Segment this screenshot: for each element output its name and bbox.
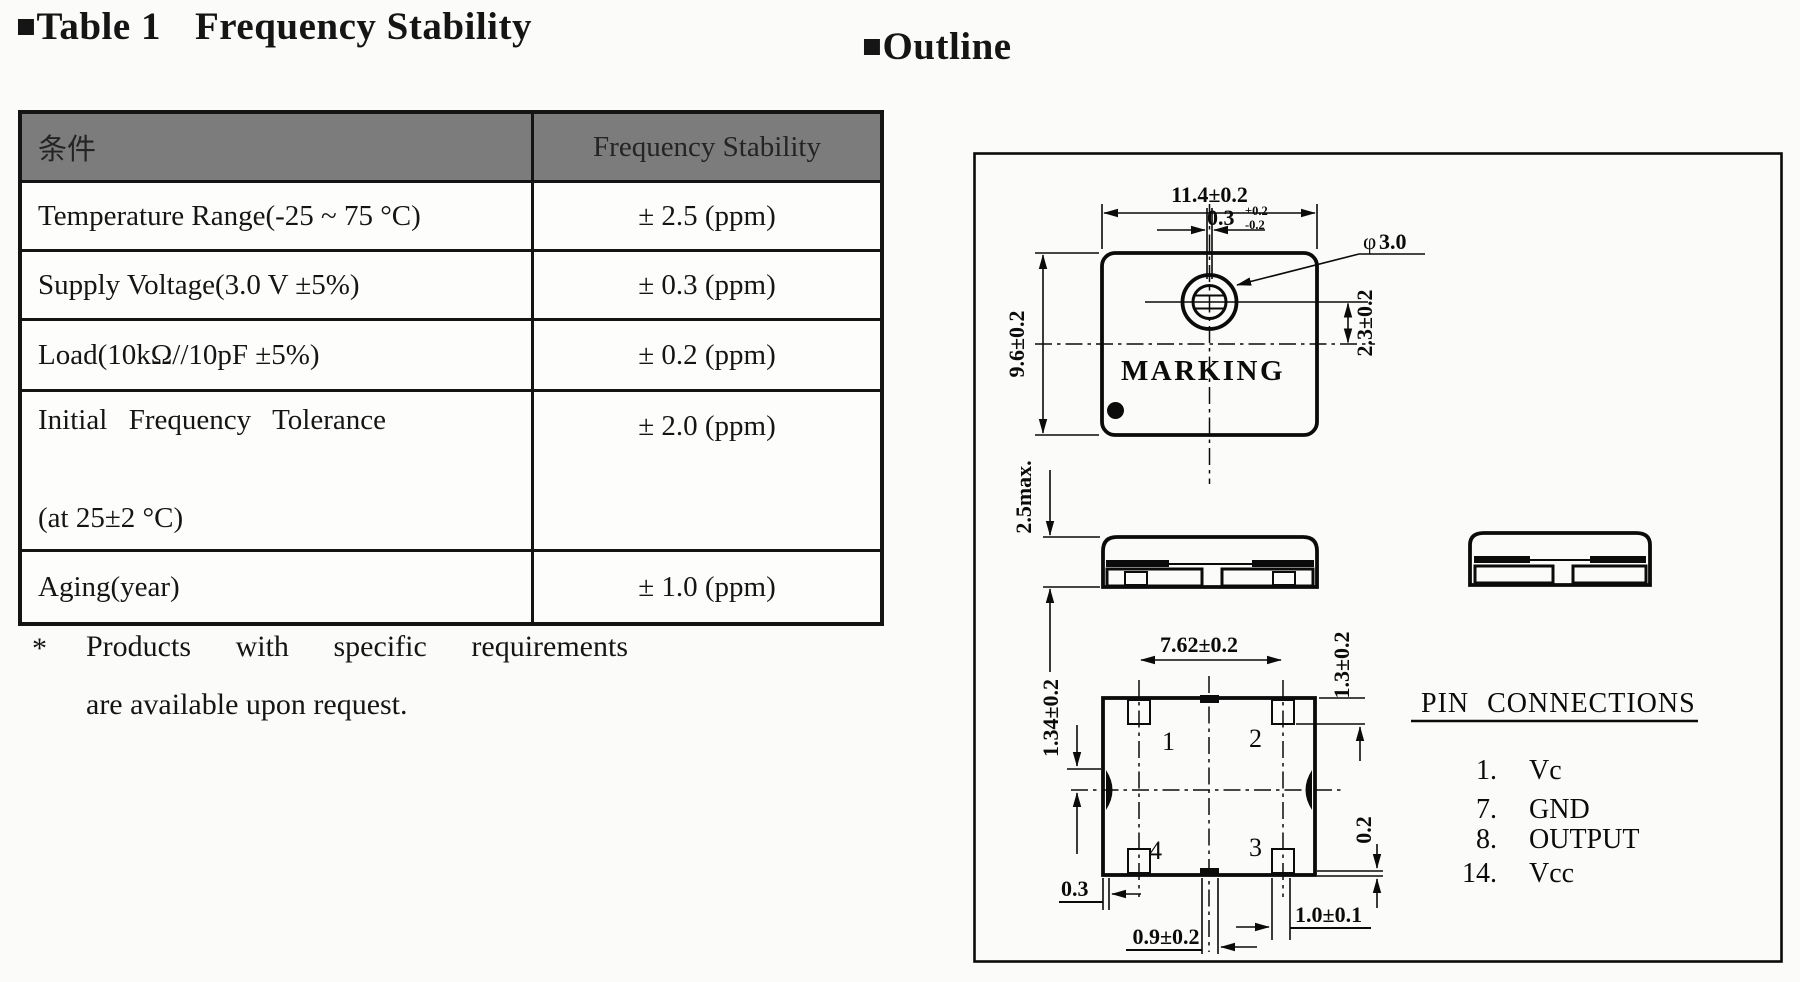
header-condition: 条件 xyxy=(22,114,534,180)
footnote-line1: Products with specific requirements xyxy=(86,630,628,664)
dim-width-label: 11.4±0.2 xyxy=(1171,182,1248,207)
right-notch xyxy=(1306,770,1313,810)
value-supply-voltage: ± 0.3 (ppm) xyxy=(534,252,880,318)
marking-label: MARKING xyxy=(1121,355,1285,387)
dim-pad-pitch-label: 7.62±0.2 xyxy=(1160,632,1238,657)
side-view-right xyxy=(1470,533,1650,585)
dim-thickness: 2.5max. xyxy=(1011,460,1100,672)
dim-pad-width: 1.0±0.1 xyxy=(1236,878,1371,940)
value-load: ± 0.2 (ppm) xyxy=(534,321,880,389)
dim-hole-offset: 2.3±0.2 xyxy=(1348,289,1377,356)
pin-connections-title: PIN CONNECTIONS xyxy=(1421,688,1696,719)
dim-slot-tol-lower: -0.2 xyxy=(1245,218,1265,232)
dim-height-label: 9.6±0.2 xyxy=(1004,310,1029,377)
outline-section-title: ■Outline xyxy=(862,24,1012,69)
pin-name: GND xyxy=(1529,794,1590,825)
dim-slot-label: 0.3 xyxy=(1207,205,1235,230)
table-title-subject: Frequency Stability xyxy=(195,5,532,48)
side-pad-hatch xyxy=(1125,572,1147,585)
asterisk-marker: * xyxy=(32,632,47,666)
frequency-stability-table: 条件 Frequency Stability Temperature Range… xyxy=(18,110,884,626)
condition-aging: Aging(year) xyxy=(22,552,534,622)
condition-initial-tolerance-line1: Initial Frequency Tolerance xyxy=(38,404,386,437)
dim-pad-pitch: 7.62±0.2 xyxy=(1141,632,1281,660)
phi-symbol: φ xyxy=(1363,229,1376,254)
condition-initial-tolerance: Initial Frequency Tolerance (at 25±2 °C) xyxy=(22,392,534,549)
pin-number: 14. xyxy=(1462,858,1497,889)
condition-supply-voltage: Supply Voltage(3.0 V ±5%) xyxy=(22,252,534,318)
table-row: Initial Frequency Tolerance (at 25±2 °C)… xyxy=(22,389,880,549)
dim-edge-gap: 0.3 xyxy=(1059,876,1141,910)
outline-title-label: Outline xyxy=(882,25,1011,68)
pin-name: OUTPUT xyxy=(1529,824,1639,855)
value-aging: ± 1.0 (ppm) xyxy=(534,552,880,622)
top-view: MARKING 11.4±0.2 0.3 +0.2 -0.2 φ 3.0 xyxy=(1004,182,1425,484)
dim-center-notch: 0.9±0.2 xyxy=(1126,878,1257,954)
pin-name: Vc xyxy=(1529,755,1562,786)
table-row: Supply Voltage(3.0 V ±5%) ± 0.3 (ppm) xyxy=(22,249,880,318)
value-temperature-range: ± 2.5 (ppm) xyxy=(534,183,880,249)
pin-connections: PIN CONNECTIONS 1. Vc 7. GND 8. OUTPUT 1… xyxy=(1411,688,1698,889)
condition-load: Load(10kΩ//10pF ±5%) xyxy=(22,321,534,389)
dim-edge-gap-label: 0.3 xyxy=(1061,876,1089,901)
table-section-title: ■Table 1Frequency Stability xyxy=(16,4,532,49)
dim-pad-length-label: 1.3±0.2 xyxy=(1329,631,1354,698)
dim-pad-side-label: 1.34±0.2 xyxy=(1038,679,1063,757)
dim-center-notch-label: 0.9±0.2 xyxy=(1132,924,1199,949)
side-pad-hatch xyxy=(1273,572,1295,585)
drawing-frame xyxy=(975,154,1782,962)
condition-temperature-range: Temperature Range(-25 ~ 75 °C) xyxy=(22,183,534,249)
dim-slot-tol-upper: +0.2 xyxy=(1245,204,1268,218)
pad-2-number: 2 xyxy=(1249,724,1262,753)
table-row: Temperature Range(-25 ~ 75 °C) ± 2.5 (pp… xyxy=(22,180,880,249)
dim-hole-diameter: φ 3.0 xyxy=(1237,229,1425,285)
footnote: * Products with specific requirements ar… xyxy=(30,630,640,722)
dim-pad-side: 1.34±0.2 xyxy=(1038,679,1101,854)
value-initial-tolerance: ± 2.0 (ppm) xyxy=(534,392,880,549)
pin1-index-dot xyxy=(1107,402,1124,419)
left-notch xyxy=(1106,770,1113,810)
dim-hole-offset-label: 2.3±0.2 xyxy=(1352,289,1377,356)
dim-thickness-label: 2.5max. xyxy=(1011,460,1036,533)
dim-pad-width-label: 1.0±0.1 xyxy=(1295,902,1362,927)
dim-hole-label: 3.0 xyxy=(1379,229,1407,254)
square-bullet-icon: ■ xyxy=(16,9,36,45)
datasheet-page: { "page": { "background": "#fbfbfa", "in… xyxy=(0,0,1800,982)
pin-number: 1. xyxy=(1476,755,1497,786)
pin-name: Vcc xyxy=(1529,858,1574,889)
pin-number: 8. xyxy=(1476,824,1497,855)
header-frequency-stability: Frequency Stability xyxy=(534,114,880,180)
footnote-line2: are available upon request. xyxy=(86,688,628,722)
table-header-row: 条件 Frequency Stability xyxy=(22,114,880,180)
table-row: Load(10kΩ//10pF ±5%) ± 0.2 (ppm) xyxy=(22,318,880,389)
pin-number: 7. xyxy=(1476,794,1497,825)
condition-initial-tolerance-line2: (at 25±2 °C) xyxy=(38,502,531,535)
pad-1-number: 1 xyxy=(1162,727,1175,756)
dim-slot-width: 0.3 +0.2 -0.2 xyxy=(1157,204,1268,232)
pad-4-number: 4 xyxy=(1149,836,1162,865)
dim-bottom-step-label: 0.2 xyxy=(1351,816,1376,844)
pad-3-number: 3 xyxy=(1249,833,1262,862)
dim-bottom-step: 0.2 xyxy=(1317,816,1383,908)
bottom-view: 1 2 4 3 7.62±0.2 1.3±0.2 1.34±0.2 xyxy=(1038,631,1383,954)
table-row: Aging(year) ± 1.0 (ppm) xyxy=(22,549,880,622)
square-bullet-icon: ■ xyxy=(862,29,882,65)
outline-drawing: MARKING 11.4±0.2 0.3 +0.2 -0.2 φ 3.0 xyxy=(973,152,1783,963)
table-title-label: Table 1 xyxy=(36,5,161,48)
